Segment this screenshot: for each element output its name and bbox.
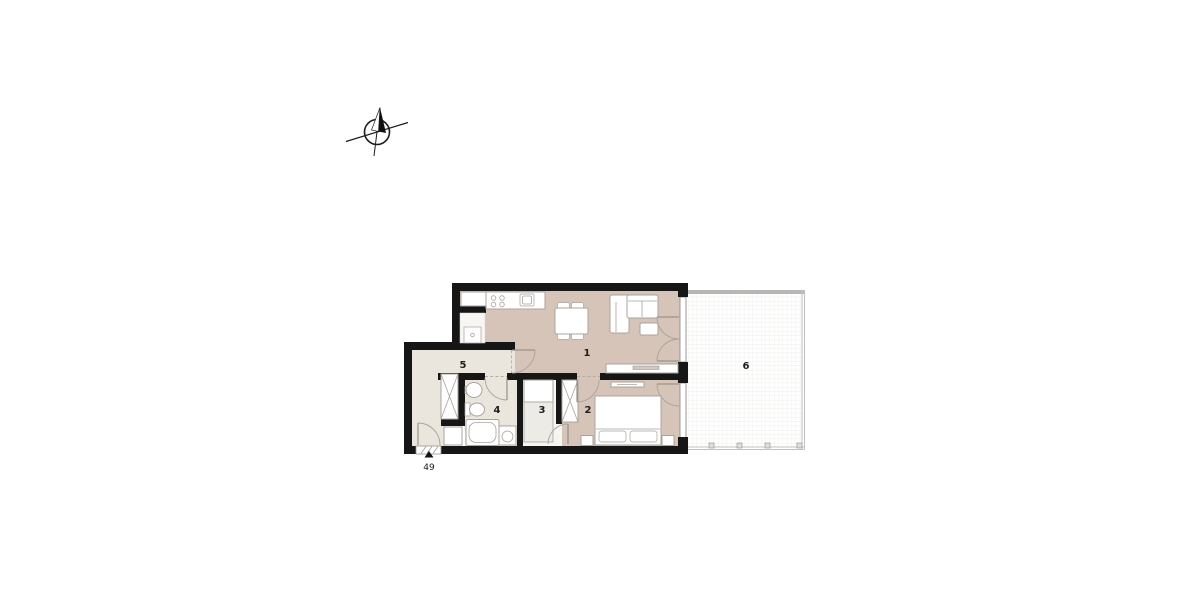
railing-post xyxy=(765,443,770,448)
wall-living-bedroom-right xyxy=(600,373,688,380)
bathroom-sink xyxy=(466,383,482,398)
unit-number-label: 49 xyxy=(423,463,435,473)
wall-bottom-left xyxy=(404,446,416,454)
floor-plan-canvas: 49 xyxy=(0,0,1200,600)
railing-post xyxy=(737,443,742,448)
bedroom-window-wall xyxy=(680,383,686,438)
north-arrow-icon xyxy=(346,108,408,157)
facade-pillar-bottom xyxy=(678,437,688,454)
room-label-6: 6 xyxy=(743,361,750,372)
room-label-2: 2 xyxy=(585,405,592,416)
floor-plan-drawing: 49 xyxy=(0,0,1200,600)
bathtub xyxy=(466,420,499,446)
wall-kitchen-niche-stub xyxy=(459,306,486,313)
room-label-4: 4 xyxy=(494,405,501,416)
wall-hall-stub xyxy=(508,342,515,350)
coffee-table xyxy=(640,323,658,335)
terrace-top-edge xyxy=(686,290,805,294)
nightstand xyxy=(662,436,674,446)
railing-post xyxy=(797,443,802,448)
dining-table xyxy=(555,308,588,334)
toilet xyxy=(470,403,485,416)
tv xyxy=(633,366,659,370)
wall-left-upper xyxy=(452,283,460,342)
wall-living-bedroom-left xyxy=(507,373,577,380)
fridge xyxy=(461,292,486,306)
living-room-window-wall xyxy=(680,297,686,362)
shoe-cabinet xyxy=(444,427,462,445)
wall-closet-bedroom xyxy=(556,380,562,424)
wall-step xyxy=(404,342,515,350)
nightstand xyxy=(581,436,593,446)
room-label-3: 3 xyxy=(539,405,546,416)
pillow xyxy=(630,431,657,442)
closet-shelf-upper xyxy=(524,380,553,402)
pillow xyxy=(599,431,626,442)
sofa xyxy=(627,295,658,318)
wall-entrance-stub xyxy=(441,419,465,426)
railing-post xyxy=(709,443,714,448)
room-label-1: 1 xyxy=(584,348,591,359)
wall-bathroom-closet xyxy=(517,380,523,446)
facade-pillar-top xyxy=(678,283,688,297)
room-label-5: 5 xyxy=(460,360,467,371)
wall-bottom xyxy=(441,446,688,454)
wall-bathroom-left xyxy=(458,380,465,425)
wall-top xyxy=(452,283,688,291)
boiler xyxy=(464,327,481,343)
sofa-chaise xyxy=(610,295,629,333)
wall-left-lower xyxy=(404,342,412,454)
